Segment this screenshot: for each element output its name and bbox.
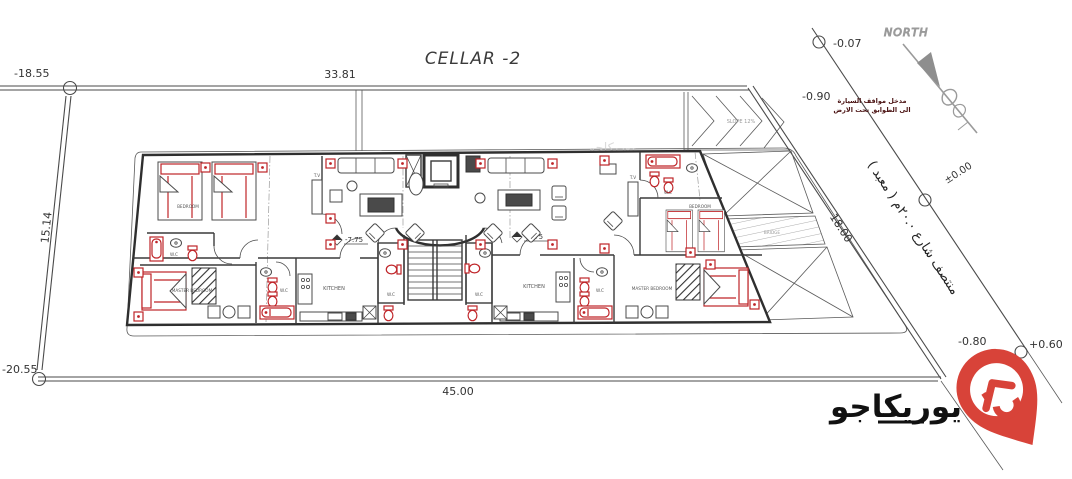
ramp-note-line2: الى الطوابق تحت الارض bbox=[833, 106, 910, 114]
tv-label-left: T.V bbox=[313, 173, 320, 178]
parking-ramp: SLOPE 12% bbox=[684, 92, 790, 150]
level-bottom-left: -20.55 bbox=[2, 363, 37, 376]
street-level-center: ±0.00 bbox=[943, 161, 975, 187]
bridge-strip: BRIDGE bbox=[725, 216, 825, 247]
bridge-label: BRIDGE bbox=[764, 230, 780, 235]
kitchen-left-label: KITCHEN bbox=[323, 286, 345, 292]
street-level-top: -0.07 bbox=[833, 37, 861, 50]
north-arrow: NORTH bbox=[884, 26, 977, 133]
svg-text:W.C: W.C bbox=[387, 292, 395, 297]
north-arrowhead bbox=[917, 52, 940, 87]
corridor-fixture-right bbox=[468, 306, 477, 321]
floor-plan-sheet: NORTH CELLAR -2 يوريكاجو -18.55 33.81 15… bbox=[0, 0, 1072, 479]
svg-text:W.C: W.C bbox=[664, 190, 672, 195]
kitchen-right-label: KITCHEN bbox=[523, 284, 545, 290]
bedroom-right-label: BEDROOM bbox=[689, 204, 711, 209]
building: W.C W.C -7.75 -7.75 bbox=[127, 151, 770, 325]
level-top-left: -18.55 bbox=[14, 67, 49, 80]
dim-left: 15.14 bbox=[38, 211, 54, 244]
svg-text:W.C: W.C bbox=[596, 288, 604, 293]
svg-text:W.C: W.C bbox=[280, 288, 288, 293]
ramp-level: -0.90 bbox=[802, 90, 830, 103]
logo-text: يوريكاجو bbox=[828, 389, 962, 425]
level-marker-street-center bbox=[919, 194, 931, 206]
slope-label: SLOPE 12% bbox=[727, 119, 756, 125]
bedroom-left-label: BEDROOM bbox=[177, 204, 199, 209]
master-bedroom-right-label: MASTER BEDROOM bbox=[632, 286, 673, 291]
svg-text:W.C: W.C bbox=[475, 292, 483, 297]
dim-street: 18.00 bbox=[827, 211, 855, 244]
master-bedroom-left-label: MASTER BEDROOM bbox=[172, 288, 213, 293]
corner-marker-top-left bbox=[64, 82, 77, 95]
sheet-title: CELLAR -2 bbox=[425, 49, 521, 69]
ramp-note-line1: مدخل مواقف السيارة bbox=[837, 97, 906, 105]
north-label: NORTH bbox=[884, 26, 929, 39]
tv-unit-left bbox=[312, 180, 322, 214]
svg-text:W.C: W.C bbox=[170, 252, 178, 257]
dim-top: 33.81 bbox=[324, 68, 356, 81]
street-level-bottom-right: +0.60 bbox=[1029, 338, 1063, 351]
svg-text:-7.75: -7.75 bbox=[345, 236, 363, 244]
tv-unit-right bbox=[628, 182, 638, 216]
street-level-bottom-left: -0.80 bbox=[958, 335, 986, 348]
floor-plan-drawing: NORTH CELLAR -2 يوريكاجو -18.55 33.81 15… bbox=[0, 0, 1072, 479]
corridor-fixture-left bbox=[384, 306, 393, 321]
tv-label-right: T.V bbox=[629, 175, 636, 180]
elevator bbox=[424, 155, 458, 187]
logo-pin-icon bbox=[942, 334, 1066, 466]
dim-bottom: 45.00 bbox=[442, 385, 474, 398]
